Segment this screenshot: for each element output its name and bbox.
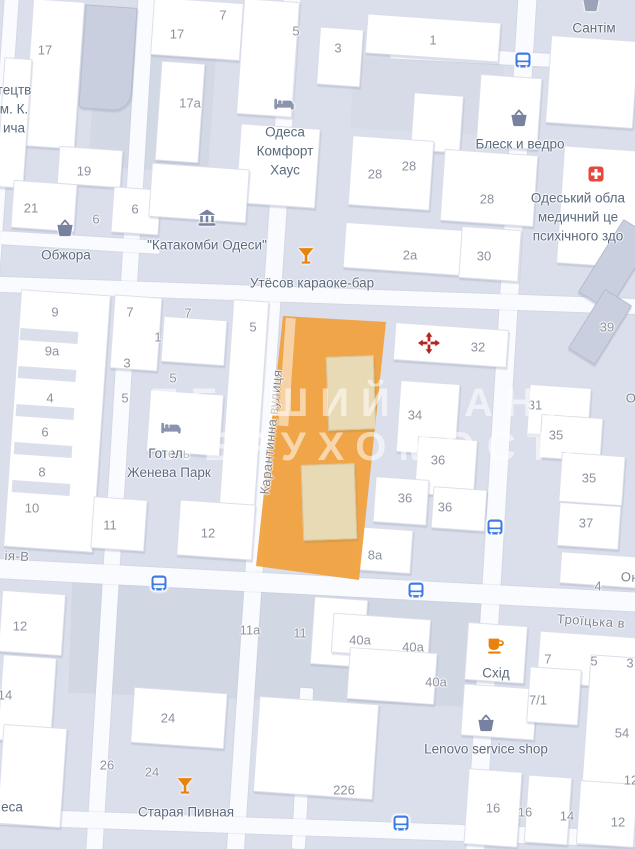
basket-icon[interactable] xyxy=(510,110,529,127)
bus-icon[interactable] xyxy=(393,815,410,834)
bus-icon[interactable] xyxy=(408,582,425,601)
cocktail-icon[interactable] xyxy=(297,247,316,266)
store-icon xyxy=(582,0,601,12)
bus-icon[interactable] xyxy=(487,519,504,538)
bus-icon[interactable] xyxy=(515,52,532,71)
basket-icon[interactable] xyxy=(477,715,496,732)
cocktail-icon[interactable] xyxy=(176,777,195,796)
coffee-icon[interactable] xyxy=(487,638,506,655)
basket-icon[interactable] xyxy=(56,220,75,237)
bed-icon[interactable] xyxy=(274,97,295,112)
bus-icon[interactable] xyxy=(151,575,168,594)
map-canvas[interactable]: 1771753117а1921662828282а30977519а354568… xyxy=(0,0,635,849)
museum-icon[interactable] xyxy=(198,210,217,227)
bed-icon[interactable] xyxy=(161,421,182,436)
arrows-icon xyxy=(418,332,441,355)
hospital-icon[interactable] xyxy=(588,166,605,183)
